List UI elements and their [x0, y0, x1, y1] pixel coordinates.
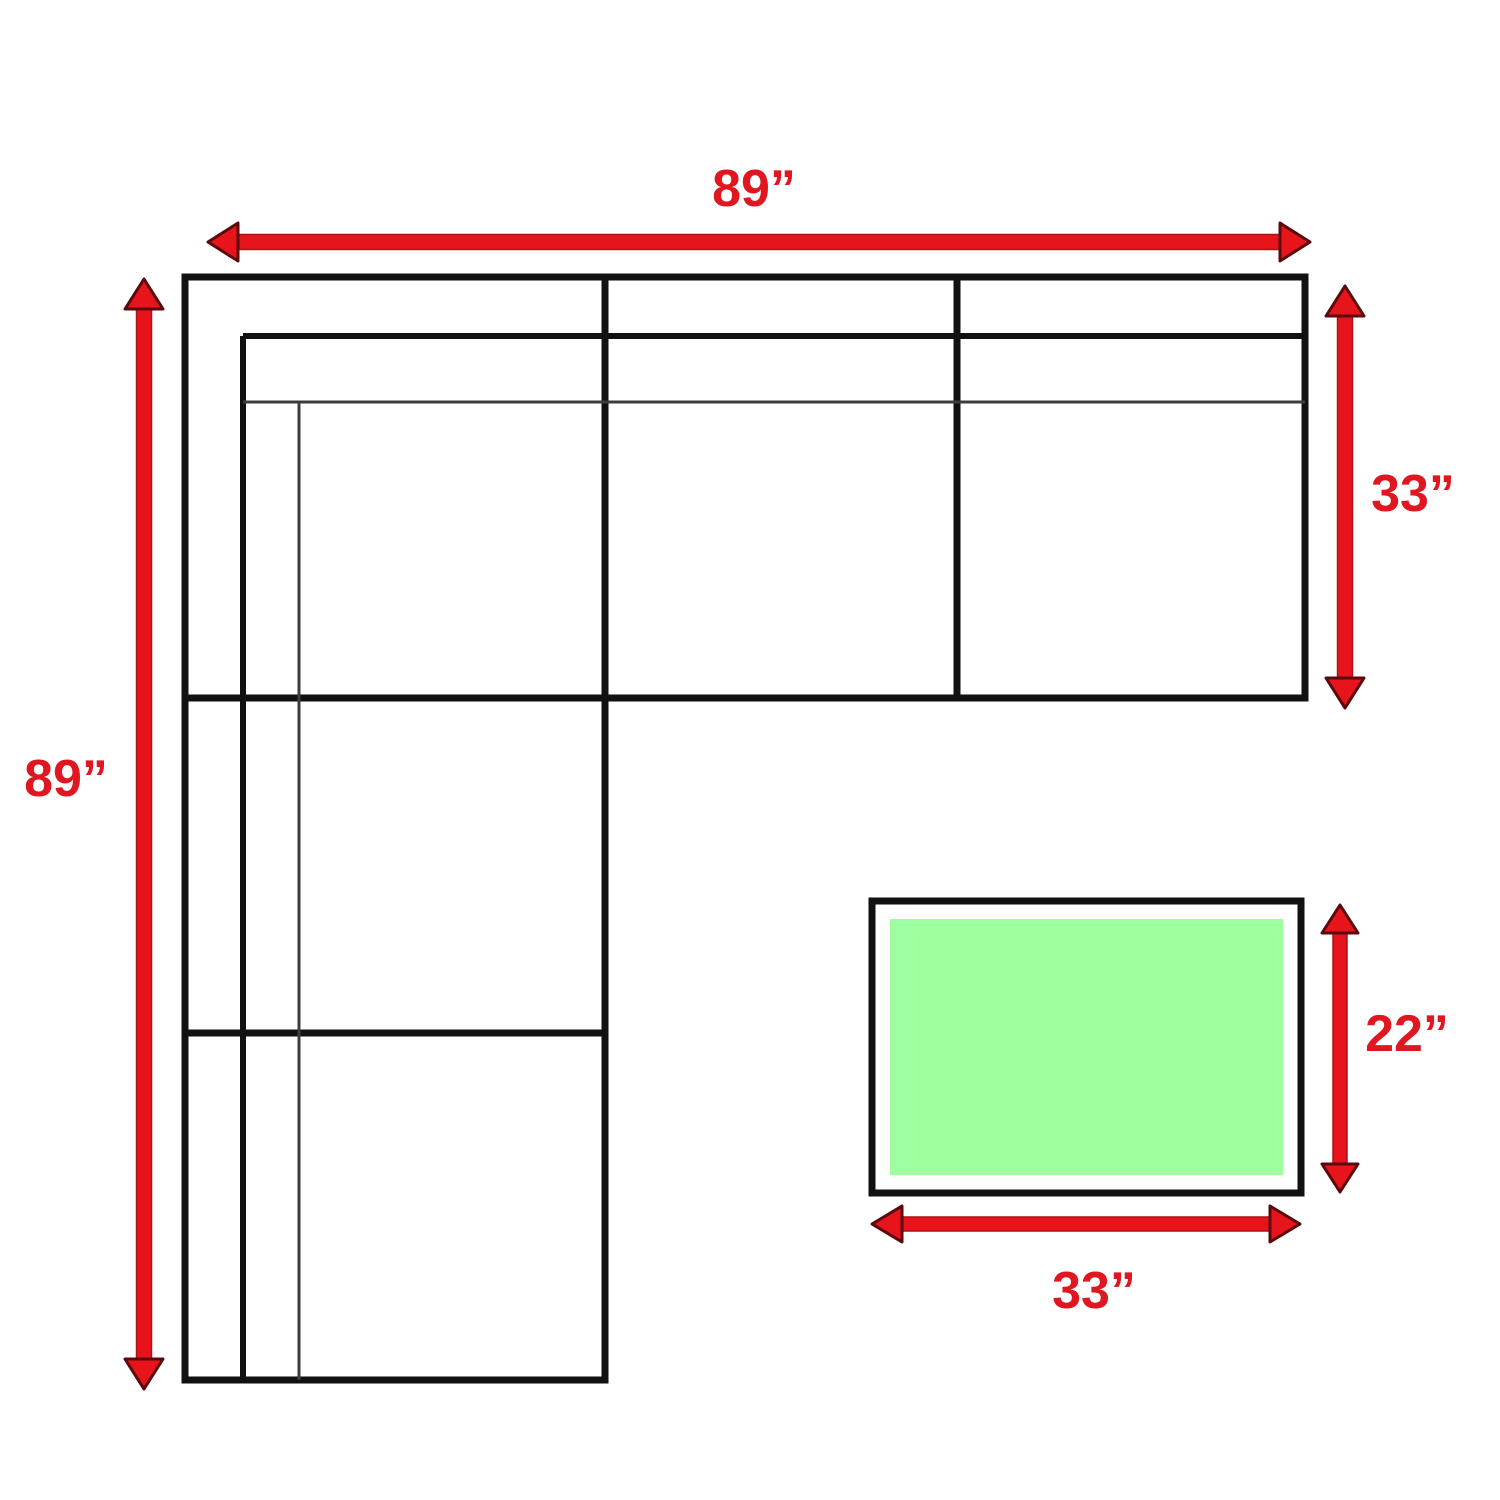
diagram-canvas: 89” 89” 33” 22” 33”: [0, 0, 1500, 1500]
sofa-width-arrow: [208, 223, 1310, 261]
sofa-width-label: 89”: [712, 160, 796, 218]
sofa-dimension-svg: 89” 89” 33” 22” 33”: [0, 0, 1500, 1500]
arrow-head-bottom: [1326, 678, 1364, 708]
arrow-head-bottom: [125, 1359, 163, 1389]
ottoman: [872, 901, 1301, 1193]
arrow-head-top: [1326, 286, 1364, 316]
ottoman-depth-label: 22”: [1365, 1005, 1449, 1063]
arrow-head-right: [1280, 223, 1310, 261]
sofa-depth-arrow: [125, 279, 163, 1389]
sofa-depth-label: 89”: [24, 750, 108, 808]
ottoman-width-label: 33”: [1052, 1262, 1136, 1320]
arrow-head-right: [1270, 1206, 1300, 1242]
arrow-head-top: [125, 279, 163, 309]
arrow-shaft: [1333, 929, 1347, 1168]
arrow-shaft: [1338, 312, 1353, 682]
ottoman-depth-arrow: [1322, 905, 1358, 1192]
ottoman-width-arrow: [872, 1206, 1300, 1242]
arrow-head-top: [1322, 905, 1358, 933]
arrow-shaft: [137, 305, 152, 1363]
arrow-head-bottom: [1322, 1164, 1358, 1192]
sofa-section-depth-label: 33”: [1371, 465, 1455, 523]
sofa-outline: [185, 277, 1305, 1380]
sofa-section-depth-arrow: [1326, 286, 1364, 708]
arrow-shaft: [898, 1217, 1274, 1231]
arrow-head-left: [872, 1206, 902, 1242]
ottoman-top-surface: [890, 919, 1283, 1175]
arrow-shaft: [234, 235, 1282, 250]
arrow-head-left: [208, 223, 238, 261]
sectional-sofa: [185, 277, 1305, 1380]
